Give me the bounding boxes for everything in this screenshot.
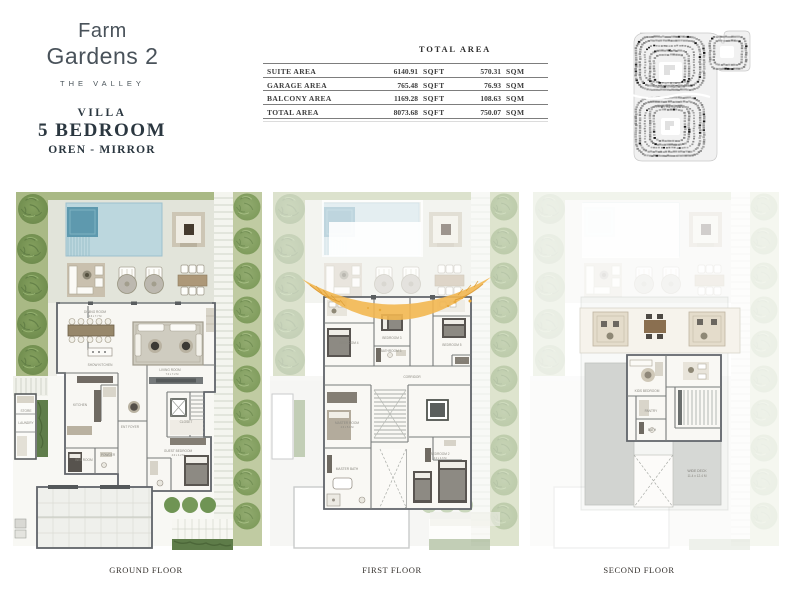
svg-text:CLOSET: CLOSET — [180, 420, 193, 424]
svg-text:KIDS BEDROOM: KIDS BEDROOM — [635, 389, 660, 393]
svg-text:STORE: STORE — [21, 409, 32, 413]
svg-text:4.6 x 7.7 M: 4.6 x 7.7 M — [89, 314, 102, 318]
svg-text:BED ROOM: BED ROOM — [75, 458, 93, 462]
svg-text:MASTER BATH: MASTER BATH — [336, 467, 359, 471]
svg-text:LIVING ROOM: LIVING ROOM — [159, 368, 181, 372]
svg-text:W.I.C: W.I.C — [457, 358, 465, 362]
svg-text:WIDE DECK: WIDE DECK — [687, 469, 707, 473]
svg-text:CORRIDOR: CORRIDOR — [403, 375, 421, 379]
svg-text:BEDROOM 2: BEDROOM 2 — [430, 452, 449, 456]
svg-text:11.4 x 12.4 M: 11.4 x 12.4 M — [687, 474, 706, 478]
svg-text:POWDER: POWDER — [101, 453, 116, 457]
svg-text:ENT FOYER: ENT FOYER — [121, 425, 140, 429]
svg-text:MASTER ROOM: MASTER ROOM — [335, 421, 359, 425]
svg-text:BATH: BATH — [648, 428, 657, 432]
svg-text:KITCHEN: KITCHEN — [73, 403, 88, 407]
svg-text:4.0 x 4.6 M: 4.0 x 4.6 M — [434, 456, 447, 460]
svg-text:7.0 x 7.2 M: 7.0 x 7.2 M — [166, 372, 179, 376]
svg-text:BEDROOM 5: BEDROOM 5 — [442, 343, 461, 347]
svg-text:4.6 x 5.1 M: 4.6 x 5.1 M — [341, 425, 354, 429]
svg-text:BEDROOM 3: BEDROOM 3 — [382, 336, 401, 340]
svg-text:SHOW KITCHEN: SHOW KITCHEN — [88, 363, 113, 367]
svg-text:PANTRY: PANTRY — [645, 409, 659, 413]
svg-text:BATHROOM 3: BATHROOM 3 — [381, 349, 402, 353]
svg-text:4.0 x 4.2 M: 4.0 x 4.2 M — [172, 453, 185, 457]
svg-text:GUEST BEDROOM: GUEST BEDROOM — [164, 449, 193, 453]
svg-text:BEDROOM 4: BEDROOM 4 — [339, 341, 358, 345]
svg-text:LAUNDRY: LAUNDRY — [18, 421, 34, 425]
svg-text:DINING ROOM: DINING ROOM — [84, 310, 106, 314]
